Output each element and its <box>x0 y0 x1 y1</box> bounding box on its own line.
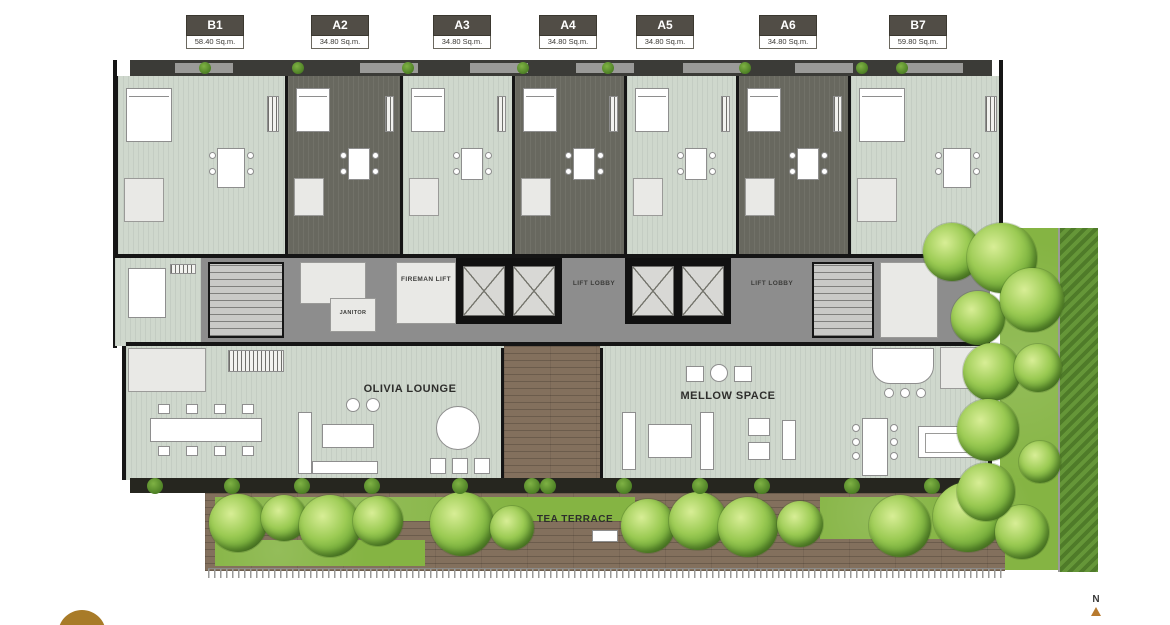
unit-label-A5: A5 34.80 Sq.m. <box>636 15 694 49</box>
tree-icon <box>430 492 494 556</box>
unit-area-B7: 59.80 Sq.m. <box>889 36 947 49</box>
side-table-icon <box>452 458 468 474</box>
lift-shaft-icon <box>513 266 555 316</box>
unit-id-B1: B1 <box>186 15 244 36</box>
stool-icon <box>900 388 910 398</box>
tree-icon <box>621 499 675 553</box>
stool-icon <box>890 438 898 446</box>
balcony-unit-box <box>905 63 963 73</box>
unit-area-A5: 34.80 Sq.m. <box>636 36 694 49</box>
tree-icon <box>718 497 778 557</box>
bush-icon <box>616 478 632 494</box>
chair-icon <box>821 152 828 159</box>
balcony-unit-box <box>683 63 741 73</box>
cafe-table-icon <box>686 366 704 382</box>
unit-floor-A5 <box>624 76 736 256</box>
chair-icon <box>973 152 980 159</box>
unit-label-A6: A6 34.80 Sq.m. <box>759 15 817 49</box>
wardrobe-icon <box>170 264 196 274</box>
mellow-space-label: MELLOW SPACE <box>648 390 808 402</box>
tree-icon <box>777 501 823 547</box>
tree-icon <box>490 506 534 550</box>
bed-pillow-line <box>526 96 554 97</box>
louver-bench-icon <box>228 350 284 372</box>
bush-icon <box>294 478 310 494</box>
stair-left <box>208 262 284 338</box>
armchair-icon <box>748 418 770 436</box>
side-table-icon <box>430 458 446 474</box>
brand-logo-badge <box>58 610 106 625</box>
chair-icon <box>973 168 980 175</box>
bar-counter-icon <box>872 348 934 384</box>
ottoman-icon <box>346 398 360 412</box>
bush-icon <box>896 62 908 74</box>
bed-icon <box>523 88 557 132</box>
chair-icon <box>214 404 226 414</box>
chair-icon <box>789 152 796 159</box>
bush-icon <box>924 478 940 494</box>
floor-plan-canvas: B1 58.40 Sq.m. A2 34.80 Sq.m. A3 34.80 S… <box>0 0 1170 625</box>
amenity-wall-mid2 <box>600 348 603 480</box>
unit-label-A4: A4 34.80 Sq.m. <box>539 15 597 49</box>
bush-icon <box>739 62 751 74</box>
table-icon <box>217 148 245 188</box>
tree-icon <box>869 495 931 557</box>
unit-area-A6: 34.80 Sq.m. <box>759 36 817 49</box>
bush-icon <box>199 62 211 74</box>
amenity-wall-mid1 <box>501 348 504 480</box>
bed-icon <box>411 88 445 132</box>
unit-label-B1: B1 58.40 Sq.m. <box>186 15 244 49</box>
bush-icon <box>364 478 380 494</box>
tree-icon <box>1000 268 1064 332</box>
table-icon <box>348 148 370 180</box>
north-arrow-icon <box>1091 607 1101 616</box>
table-icon <box>797 148 819 180</box>
bathroom-icon <box>294 178 324 216</box>
stool-icon <box>852 424 860 432</box>
bed-pillow-line <box>862 96 902 97</box>
terrace-edge-ticks <box>208 568 1005 578</box>
chair-icon <box>709 168 716 175</box>
tree-icon <box>951 291 1005 345</box>
unit-label-A2: A2 34.80 Sq.m. <box>311 15 369 49</box>
chair-icon <box>709 152 716 159</box>
chair-icon <box>453 168 460 175</box>
ottoman-icon <box>366 398 380 412</box>
bed-icon <box>296 88 330 132</box>
tree-icon <box>957 463 1015 521</box>
lift-shaft-icon <box>682 266 724 316</box>
bathroom-icon <box>745 178 775 216</box>
chair-icon <box>340 168 347 175</box>
hanging-chair-icon <box>436 406 480 450</box>
table-icon <box>943 148 971 188</box>
unit-floor-A3 <box>400 76 512 256</box>
tree-icon <box>209 494 267 552</box>
tree-icon <box>353 496 403 546</box>
wardrobe-icon <box>267 96 279 132</box>
table-icon <box>685 148 707 180</box>
chair-icon <box>821 168 828 175</box>
stool-icon <box>852 438 860 446</box>
chair-icon <box>242 404 254 414</box>
bush-icon <box>754 478 770 494</box>
cafe-table-icon <box>710 364 728 382</box>
bed-pillow-line <box>750 96 778 97</box>
wardrobe-icon <box>497 96 506 132</box>
chair-icon <box>372 168 379 175</box>
stool-icon <box>852 452 860 460</box>
chair-icon <box>209 152 216 159</box>
stool-icon <box>890 424 898 432</box>
chair-icon <box>209 168 216 175</box>
chair-icon <box>935 168 942 175</box>
restroom-block <box>128 348 206 392</box>
chair-icon <box>935 152 942 159</box>
unit-id-A4: A4 <box>539 15 597 36</box>
unit-floor-A2 <box>285 76 400 256</box>
chair-icon <box>453 152 460 159</box>
unit-id-B7: B7 <box>889 15 947 36</box>
balcony-unit-box <box>795 63 853 73</box>
bush-icon <box>602 62 614 74</box>
lift-shaft-icon <box>632 266 674 316</box>
chair-icon <box>677 168 684 175</box>
unit-area-A3: 34.80 Sq.m. <box>433 36 491 49</box>
tree-icon <box>1014 344 1062 392</box>
stool-icon <box>884 388 894 398</box>
chair-icon <box>565 152 572 159</box>
wardrobe-icon <box>985 96 997 132</box>
unit-floor-B7 <box>848 76 1003 256</box>
tree-icon <box>1019 441 1061 483</box>
bush-icon <box>540 478 556 494</box>
lift-bank-right <box>625 258 731 324</box>
table-icon <box>461 148 483 180</box>
chair-icon <box>677 152 684 159</box>
north-label: N <box>1086 594 1106 605</box>
bush-icon <box>292 62 304 74</box>
chair-icon <box>186 446 198 456</box>
chair-icon <box>247 152 254 159</box>
chair-icon <box>789 168 796 175</box>
sofa-icon <box>700 412 714 470</box>
janitor-label: JANITOR <box>330 310 376 316</box>
bed-icon <box>126 88 172 142</box>
wardrobe-icon <box>833 96 842 132</box>
bush-icon <box>524 478 540 494</box>
sofa-icon <box>298 412 312 474</box>
stool-icon <box>916 388 926 398</box>
bed-pillow-line <box>638 96 666 97</box>
chair-icon <box>247 168 254 175</box>
coffee-table-icon <box>648 424 692 458</box>
terrace-bench-icon <box>592 530 618 542</box>
bed-icon <box>747 88 781 132</box>
bush-icon <box>452 478 468 494</box>
chair-icon <box>485 152 492 159</box>
bush-icon <box>147 478 163 494</box>
chair-icon <box>565 168 572 175</box>
sofa-icon <box>312 461 378 474</box>
bathroom-icon <box>521 178 551 216</box>
bed-pillow-line <box>414 96 442 97</box>
sofa-icon <box>622 412 636 470</box>
unit-id-A3: A3 <box>433 15 491 36</box>
bed-icon <box>128 268 166 318</box>
service-room-right <box>880 262 938 338</box>
tree-icon <box>963 343 1021 401</box>
bathroom-icon <box>857 178 897 222</box>
center-deck-strip <box>504 346 600 494</box>
chair-icon <box>214 446 226 456</box>
bush-icon <box>692 478 708 494</box>
chair-icon <box>597 168 604 175</box>
chair-icon <box>597 152 604 159</box>
chair-icon <box>242 446 254 456</box>
bush-icon <box>517 62 529 74</box>
coffee-table-icon <box>322 424 374 448</box>
unit-floor-B1 <box>115 76 285 256</box>
fireman-lift-label: FIREMAN LIFT <box>398 276 454 284</box>
unit-area-A2: 34.80 Sq.m. <box>311 36 369 49</box>
olivia-lounge-label: OLIVIA LOUNGE <box>330 383 490 395</box>
long-table-icon <box>862 418 888 476</box>
chair-icon <box>158 404 170 414</box>
bush-icon <box>856 62 868 74</box>
table-icon <box>573 148 595 180</box>
lift-bank-left <box>456 258 562 324</box>
lift-lobby-right-label: LIFT LOBBY <box>750 280 794 288</box>
unit-id-A5: A5 <box>636 15 694 36</box>
bathroom-icon <box>409 178 439 216</box>
bush-icon <box>402 62 414 74</box>
wardrobe-icon <box>721 96 730 132</box>
wardrobe-icon <box>385 96 394 132</box>
cafe-table-icon <box>734 366 752 382</box>
bed-pillow-line <box>299 96 327 97</box>
dining-table-icon <box>150 418 262 442</box>
tree-icon <box>957 399 1019 461</box>
stair-right <box>812 262 874 338</box>
unit-id-A2: A2 <box>311 15 369 36</box>
chair-icon <box>186 404 198 414</box>
unit-area-B1: 58.40 Sq.m. <box>186 36 244 49</box>
chair-icon <box>158 446 170 456</box>
unit-floor-A6 <box>736 76 848 256</box>
lift-shaft-icon <box>463 266 505 316</box>
side-table-icon <box>474 458 490 474</box>
unit-id-A6: A6 <box>759 15 817 36</box>
chair-icon <box>485 168 492 175</box>
tree-icon <box>299 495 361 557</box>
wardrobe-icon <box>609 96 618 132</box>
hedge-strip <box>1058 228 1098 572</box>
bed-icon <box>859 88 905 142</box>
bush-icon <box>224 478 240 494</box>
bathroom-icon <box>124 178 164 222</box>
amenity-wall-left <box>122 346 126 480</box>
bench-icon <box>782 420 796 460</box>
chair-icon <box>372 152 379 159</box>
unit-floor-A4 <box>512 76 624 256</box>
fireman-lift-room <box>396 262 456 324</box>
bed-pillow-line <box>129 96 169 97</box>
north-indicator: N <box>1086 594 1106 616</box>
unit-label-A3: A3 34.80 Sq.m. <box>433 15 491 49</box>
bed-icon <box>635 88 669 132</box>
unit-area-A4: 34.80 Sq.m. <box>539 36 597 49</box>
lift-lobby-left-label: LIFT LOBBY <box>572 280 616 288</box>
stool-icon <box>890 452 898 460</box>
unit-label-B7: B7 59.80 Sq.m. <box>889 15 947 49</box>
bathroom-icon <box>633 178 663 216</box>
armchair-icon <box>748 442 770 460</box>
chair-icon <box>340 152 347 159</box>
bush-icon <box>844 478 860 494</box>
